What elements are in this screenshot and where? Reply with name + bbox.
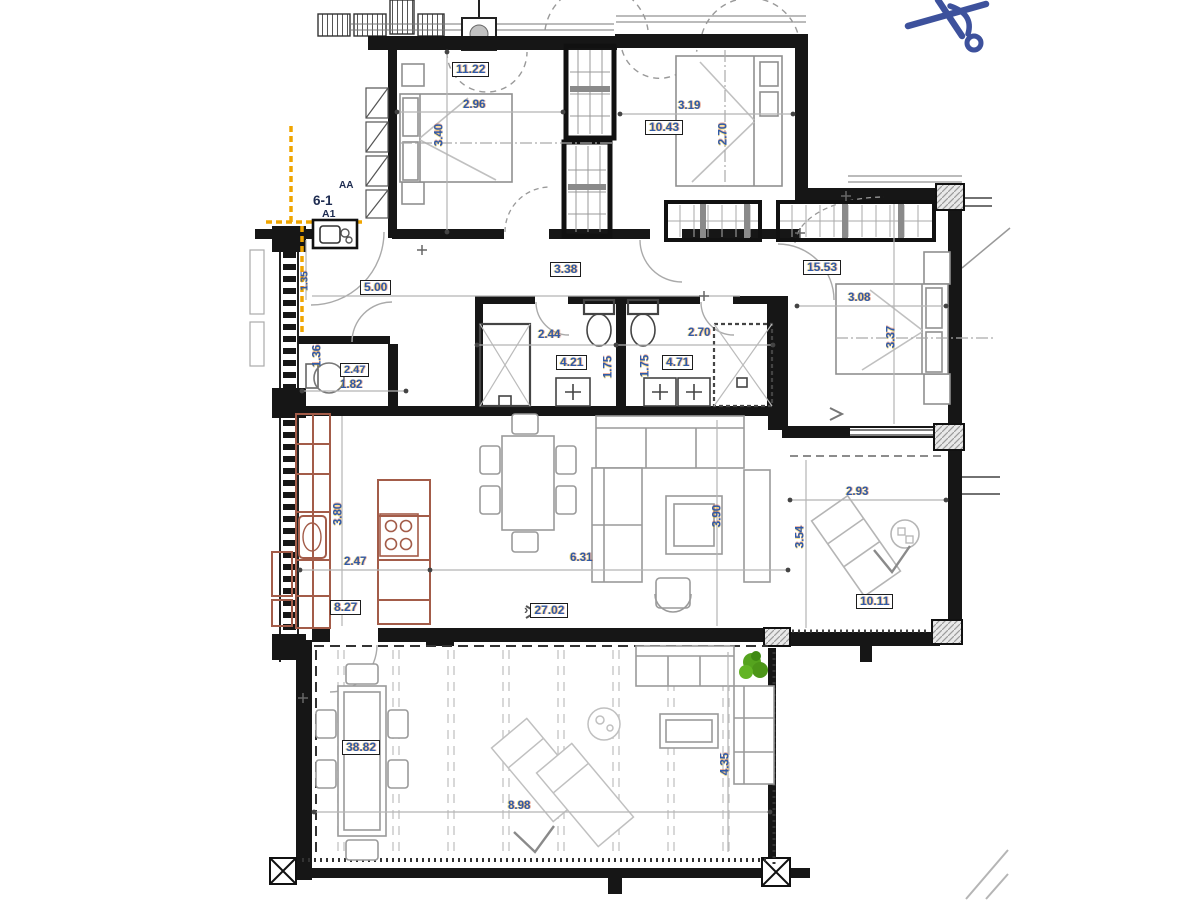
dim-kitchen-depth: 3.80 bbox=[333, 503, 346, 525]
area-label-bedroom-2: 10.43 bbox=[645, 120, 683, 135]
dim-master-width: 3.08 bbox=[848, 292, 870, 305]
dim-bedroom-2-depth: 2.70 bbox=[718, 123, 731, 145]
area-label-terrace: 38.82 bbox=[342, 740, 380, 755]
unit-label: 6-1 bbox=[313, 194, 333, 209]
floor-plan-canvas: 11.22 2.96 3.40 10.43 3.19 2.70 15.53 3.… bbox=[0, 0, 1200, 900]
area-label-living-value: 27.02 bbox=[530, 603, 568, 618]
area-label-living-dining: › 27.02 bbox=[524, 603, 568, 618]
floor-plan-drawing bbox=[0, 0, 1200, 900]
dim-covered-terrace-width: 2.93 bbox=[846, 486, 868, 499]
furniture-living bbox=[480, 414, 770, 612]
area-label-hallway: 5.00 bbox=[360, 280, 391, 295]
area-label-bathroom-2: 4.71 bbox=[662, 355, 693, 370]
terrace-loungers bbox=[492, 708, 634, 847]
dim-wc-width: 1.82 bbox=[340, 379, 362, 392]
dim-wc-depth: 1.36 bbox=[312, 345, 325, 367]
furniture-bedroom-2 bbox=[676, 56, 782, 186]
dim-bathroom-2-width: 2.70 bbox=[688, 327, 710, 340]
area-label-covered-terrace: 10.11 bbox=[856, 594, 893, 609]
dim-living-width: 6.31 bbox=[570, 552, 592, 565]
dim-terrace-width: 8.98 bbox=[508, 800, 530, 813]
north-arrow-icon bbox=[908, 0, 986, 50]
area-label-kitchen: 8.27 bbox=[330, 600, 361, 615]
area-label-bedroom-1: 11.22 bbox=[452, 62, 489, 77]
area-label-master-bedroom: 15.53 bbox=[803, 260, 841, 275]
dim-kitchen-width: 2.47 bbox=[344, 556, 366, 569]
dim-hallway-length: 3.38 bbox=[550, 262, 581, 277]
plant-icon bbox=[739, 651, 768, 679]
dim-bedroom-1-width: 2.96 bbox=[463, 99, 485, 112]
dim-terrace-depth: 4.35 bbox=[720, 753, 733, 775]
area-label-wc: 2.47 bbox=[340, 363, 369, 377]
dim-living-depth: 3.90 bbox=[712, 505, 725, 527]
dim-entry-width: 1.35 bbox=[300, 271, 311, 290]
dim-bathroom-1-depth: 1.75 bbox=[603, 356, 616, 378]
dim-bedroom-2-width: 3.19 bbox=[678, 100, 700, 113]
area-label-bathroom-1: 4.21 bbox=[556, 355, 587, 370]
dim-bedroom-1-depth: 3.40 bbox=[434, 124, 447, 146]
slider-opening bbox=[850, 428, 936, 436]
section-marker: AA bbox=[339, 180, 353, 191]
kitchen-fixtures bbox=[272, 414, 430, 628]
dim-covered-terrace-depth: 3.54 bbox=[795, 526, 808, 548]
entrance-label: A1 bbox=[322, 209, 335, 221]
dim-bathroom-2-depth: 1.75 bbox=[640, 355, 653, 377]
terrace-dining-set bbox=[316, 664, 408, 860]
dim-master-depth: 3.37 bbox=[886, 326, 899, 348]
direction-arrow-icon: › bbox=[524, 603, 528, 617]
dim-bathroom-1-width: 2.44 bbox=[538, 329, 560, 342]
